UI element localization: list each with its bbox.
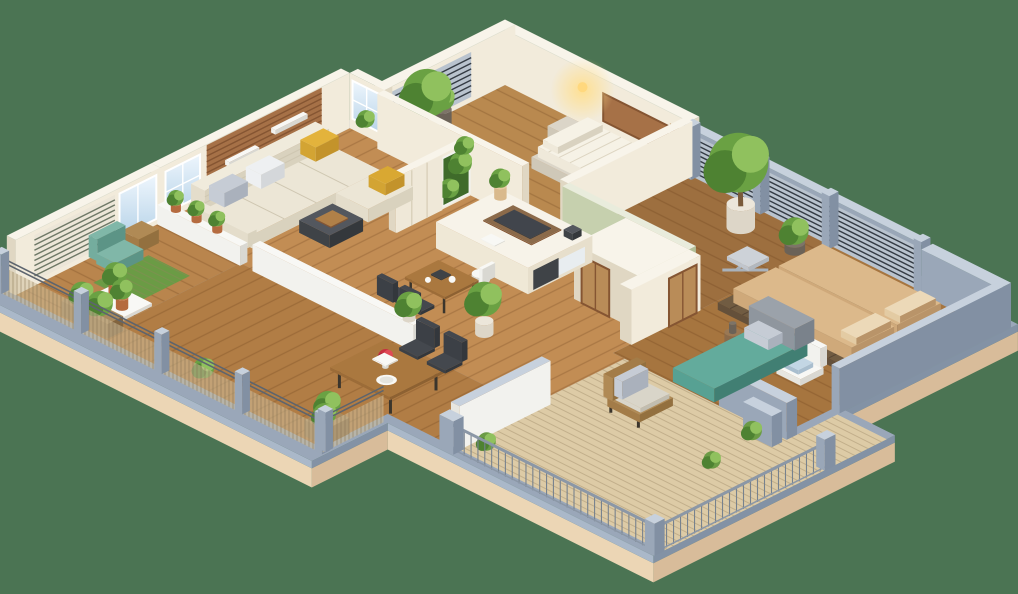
- floorplan-stage: [0, 0, 1018, 594]
- patio-post-2: [645, 514, 665, 556]
- teacup: [449, 276, 456, 283]
- floorplan-scene: [0, 0, 1018, 594]
- stool-vase: [729, 321, 736, 334]
- plate-inner: [380, 377, 394, 384]
- teacup-2: [425, 277, 431, 283]
- fence-post-3: [822, 188, 839, 249]
- plant-pot-hall: [475, 316, 493, 338]
- patio-post-3: [816, 430, 835, 471]
- patio-post-1: [439, 409, 463, 454]
- wall-lamp: [578, 82, 588, 92]
